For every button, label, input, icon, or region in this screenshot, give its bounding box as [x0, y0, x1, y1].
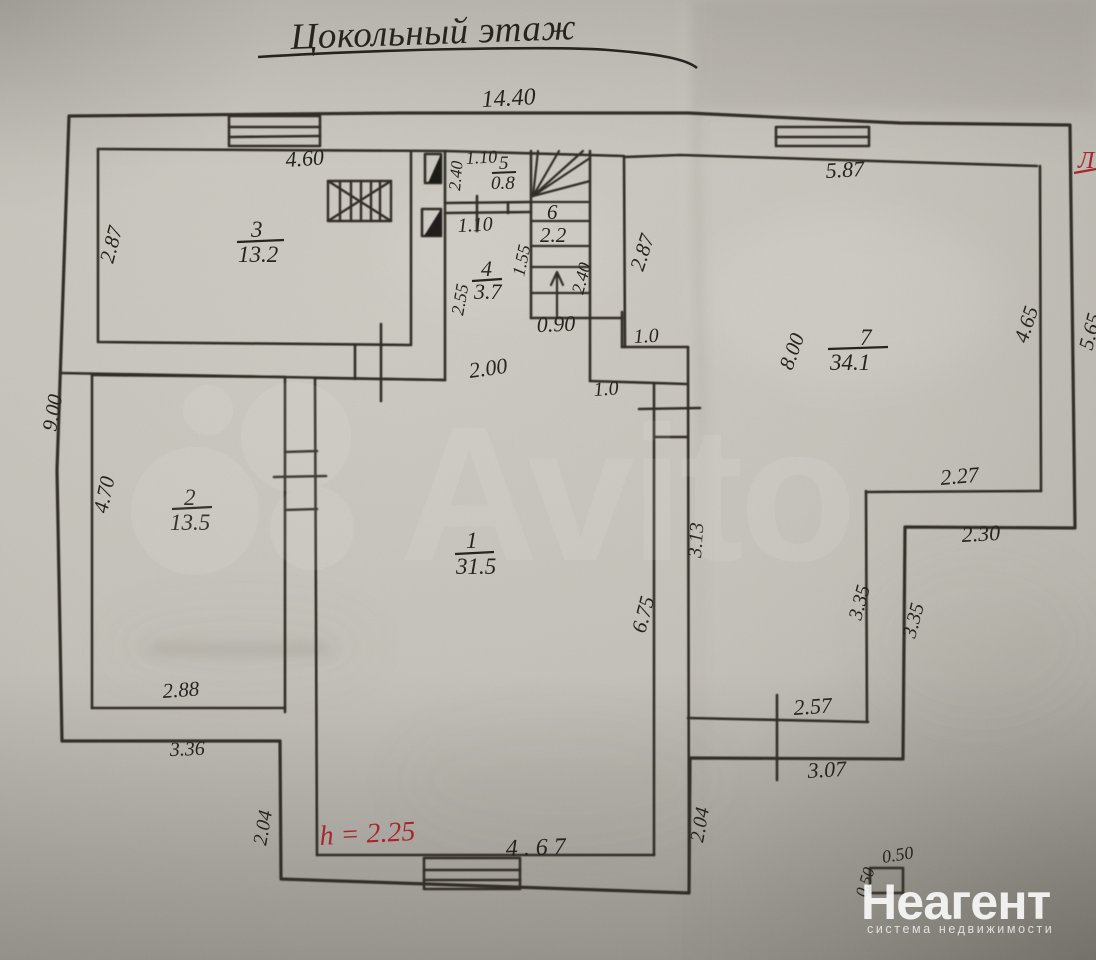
svg-text:34.1: 34.1	[829, 350, 870, 375]
svg-text:2.57: 2.57	[793, 692, 834, 720]
svg-text:Avito: Avito	[400, 386, 853, 601]
svg-text:2.40: 2.40	[445, 160, 467, 192]
svg-text:3: 3	[250, 217, 263, 242]
svg-text:h = 2.25: h = 2.25	[319, 816, 416, 852]
svg-text:4.67: 4.67	[505, 834, 572, 862]
svg-text:14.40: 14.40	[481, 84, 536, 113]
svg-text:1.0: 1.0	[633, 325, 659, 348]
svg-text:3.07: 3.07	[806, 756, 848, 783]
svg-text:5.87: 5.87	[825, 156, 866, 183]
svg-text:0.8: 0.8	[491, 173, 515, 194]
svg-text:13.2: 13.2	[238, 242, 278, 267]
svg-text:2.2: 2.2	[540, 223, 567, 247]
svg-text:3.36: 3.36	[168, 738, 205, 761]
svg-text:система недвижимости: система недвижимости	[867, 922, 1054, 936]
svg-text:4: 4	[481, 256, 492, 281]
svg-text:2.88: 2.88	[162, 676, 201, 703]
svg-text:1.10: 1.10	[457, 213, 493, 237]
svg-text:6: 6	[547, 200, 558, 224]
svg-text:7: 7	[860, 325, 873, 350]
svg-text:5: 5	[499, 153, 509, 174]
svg-text:0.90: 0.90	[536, 311, 575, 337]
svg-text:2.27: 2.27	[939, 462, 981, 490]
svg-text:4.60: 4.60	[285, 144, 325, 172]
svg-text:2.00: 2.00	[467, 353, 509, 383]
svg-text:3.7: 3.7	[473, 279, 503, 304]
svg-text:1.10: 1.10	[465, 146, 498, 168]
svg-text:2.30: 2.30	[961, 520, 1001, 547]
